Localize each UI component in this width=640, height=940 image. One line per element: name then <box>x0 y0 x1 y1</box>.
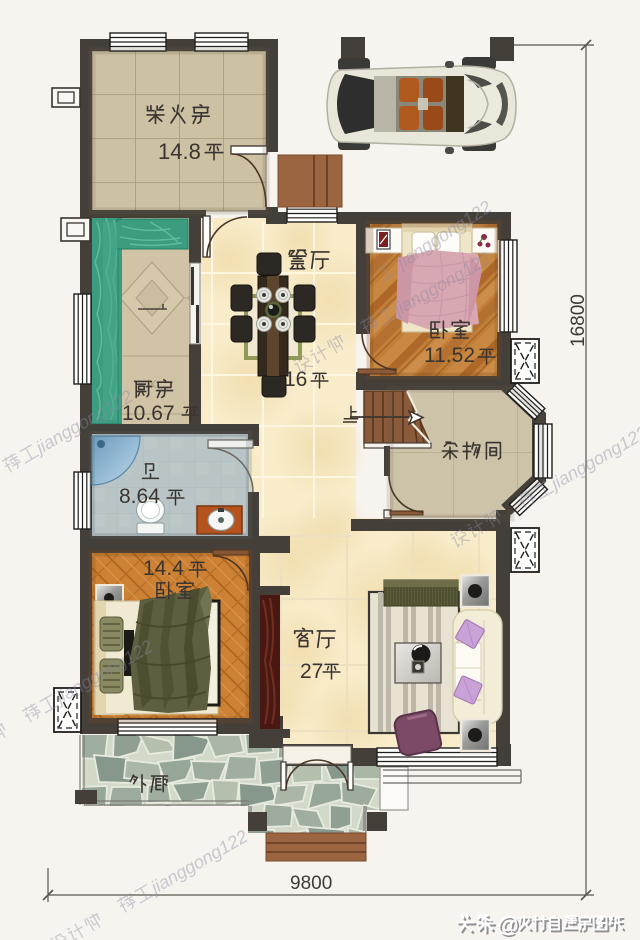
svg-text:9800: 9800 <box>290 873 332 894</box>
svg-text:11.52: 11.52 <box>424 344 475 367</box>
svg-text:8.64: 8.64 <box>119 485 160 508</box>
svg-text:14.4: 14.4 <box>143 557 184 580</box>
svg-text:16: 16 <box>284 368 307 391</box>
svg-text:16800: 16800 <box>568 294 589 347</box>
svg-text:14.8: 14.8 <box>158 139 201 164</box>
svg-text:@: @ <box>497 912 518 937</box>
svg-text:27: 27 <box>300 660 323 683</box>
